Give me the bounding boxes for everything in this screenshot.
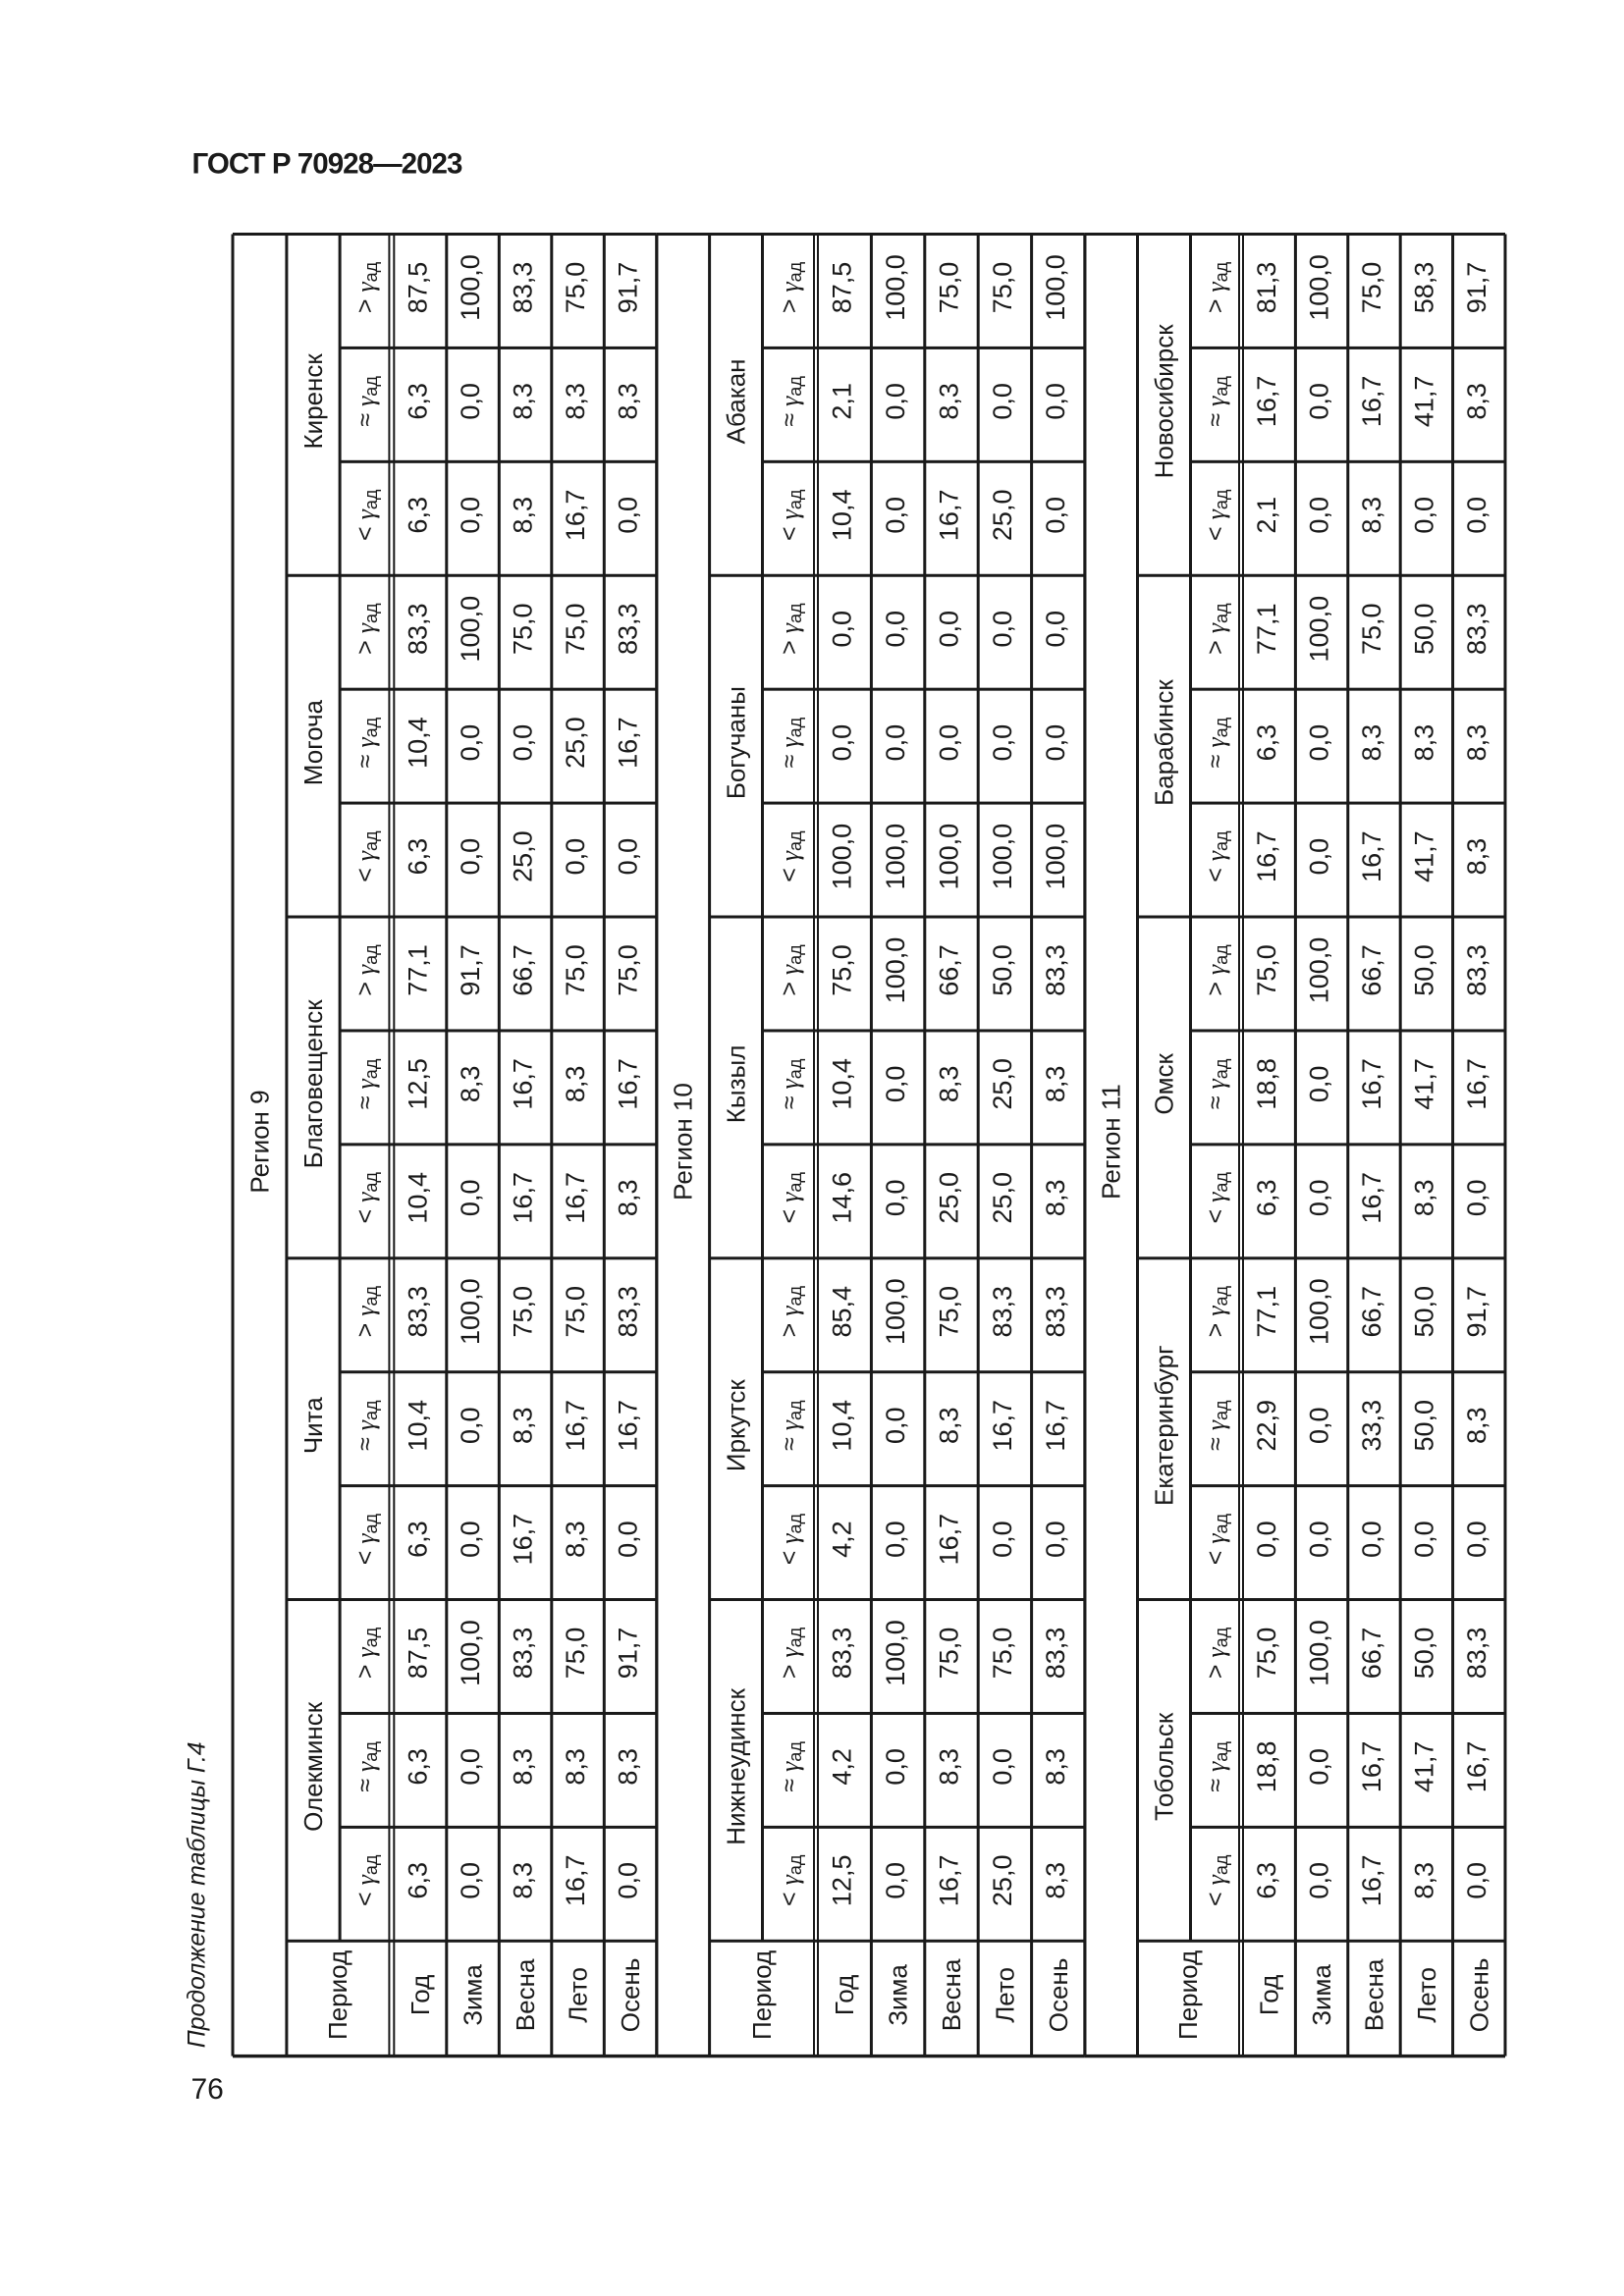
svg-text:75,0: 75,0 [988, 1628, 1017, 1680]
svg-text:12,5: 12,5 [828, 1855, 857, 1907]
svg-text:Весна: Весна [937, 1958, 966, 2031]
svg-text:75,0: 75,0 [561, 1628, 590, 1680]
svg-text:0,0: 0,0 [1305, 1748, 1334, 1786]
svg-text:75,0: 75,0 [828, 944, 857, 996]
svg-text:0,0: 0,0 [1462, 1521, 1491, 1558]
svg-text:100,0: 100,0 [456, 1278, 485, 1345]
svg-text:87,5: 87,5 [404, 262, 433, 314]
svg-text:Лето: Лето [990, 1967, 1019, 2023]
svg-text:0,0: 0,0 [456, 1862, 485, 1899]
svg-text:33,3: 33,3 [1357, 1400, 1386, 1452]
svg-text:41,7: 41,7 [1409, 1058, 1438, 1110]
svg-text:8,3: 8,3 [1409, 1862, 1438, 1899]
svg-text:12,5: 12,5 [404, 1058, 433, 1110]
svg-text:25,0: 25,0 [935, 1172, 964, 1224]
svg-text:100,0: 100,0 [881, 1620, 910, 1686]
svg-text:16,7: 16,7 [1357, 830, 1386, 882]
svg-text:8,3: 8,3 [561, 1748, 590, 1786]
svg-text:0,0: 0,0 [1041, 1521, 1070, 1558]
svg-text:25,0: 25,0 [988, 1058, 1017, 1110]
svg-text:75,0: 75,0 [1252, 1628, 1281, 1680]
svg-text:91,7: 91,7 [1462, 1286, 1491, 1338]
svg-text:8,3: 8,3 [1357, 724, 1386, 762]
svg-text:16,7: 16,7 [935, 1855, 964, 1907]
svg-text:Омск: Омск [1150, 1053, 1179, 1115]
svg-text:83,3: 83,3 [509, 1628, 538, 1680]
svg-text:0,0: 0,0 [828, 611, 857, 648]
svg-text:77,1: 77,1 [404, 944, 433, 996]
svg-text:10,4: 10,4 [828, 490, 857, 542]
svg-text:75,0: 75,0 [988, 262, 1017, 314]
svg-text:100,0: 100,0 [988, 824, 1017, 890]
svg-text:6,3: 6,3 [404, 497, 433, 534]
svg-text:0,0: 0,0 [456, 1180, 485, 1217]
svg-text:75,0: 75,0 [935, 262, 964, 314]
svg-text:8,3: 8,3 [1462, 724, 1491, 762]
svg-text:0,0: 0,0 [1409, 1521, 1438, 1558]
svg-text:16,7: 16,7 [614, 717, 643, 769]
svg-text:8,3: 8,3 [935, 1748, 964, 1786]
svg-text:10,4: 10,4 [404, 717, 433, 769]
svg-text:Регион 9: Регион 9 [244, 1090, 274, 1193]
svg-text:83,3: 83,3 [614, 1286, 643, 1338]
svg-text:66,7: 66,7 [935, 944, 964, 996]
svg-text:100,0: 100,0 [1305, 937, 1334, 1004]
svg-text:16,7: 16,7 [1462, 1741, 1491, 1793]
svg-text:16,7: 16,7 [561, 490, 590, 542]
svg-text:0,0: 0,0 [988, 611, 1017, 648]
svg-text:0,0: 0,0 [935, 724, 964, 762]
svg-text:8,3: 8,3 [1462, 838, 1491, 876]
svg-text:83,3: 83,3 [404, 603, 433, 655]
svg-text:75,0: 75,0 [1252, 944, 1281, 996]
svg-text:100,0: 100,0 [456, 1620, 485, 1686]
svg-text:8,3: 8,3 [614, 1180, 643, 1217]
svg-text:16,7: 16,7 [561, 1855, 590, 1907]
svg-text:0,0: 0,0 [1305, 1407, 1334, 1444]
svg-text:Иркутск: Иркутск [722, 1379, 751, 1471]
svg-text:16,7: 16,7 [614, 1400, 643, 1452]
svg-text:0,0: 0,0 [881, 497, 910, 534]
svg-text:0,0: 0,0 [456, 497, 485, 534]
svg-text:100,0: 100,0 [1305, 254, 1334, 321]
svg-text:0,0: 0,0 [881, 1521, 910, 1558]
svg-text:8,3: 8,3 [1409, 1180, 1438, 1217]
svg-text:8,3: 8,3 [561, 1066, 590, 1103]
svg-text:16,7: 16,7 [1252, 830, 1281, 882]
svg-text:6,3: 6,3 [404, 383, 433, 420]
svg-text:8,3: 8,3 [1041, 1748, 1070, 1786]
svg-text:25,0: 25,0 [509, 830, 538, 882]
svg-text:Абакан: Абакан [722, 358, 751, 444]
svg-text:0,0: 0,0 [881, 383, 910, 420]
svg-text:2,1: 2,1 [1252, 497, 1281, 534]
svg-text:16,7: 16,7 [935, 490, 964, 542]
svg-text:100,0: 100,0 [456, 254, 485, 321]
svg-text:87,5: 87,5 [828, 262, 857, 314]
svg-text:Лето: Лето [564, 1967, 593, 2023]
svg-text:8,3: 8,3 [509, 497, 538, 534]
svg-text:0,0: 0,0 [456, 1407, 485, 1444]
svg-text:16,7: 16,7 [561, 1400, 590, 1452]
svg-text:66,7: 66,7 [1357, 1286, 1386, 1338]
svg-text:100,0: 100,0 [881, 254, 910, 321]
svg-text:0,0: 0,0 [1305, 497, 1334, 534]
svg-text:8,3: 8,3 [509, 1748, 538, 1786]
svg-text:4,2: 4,2 [828, 1521, 857, 1558]
svg-text:81,3: 81,3 [1252, 262, 1281, 314]
svg-text:16,7: 16,7 [1252, 376, 1281, 428]
svg-text:8,3: 8,3 [1357, 497, 1386, 534]
svg-text:0,0: 0,0 [1305, 1862, 1334, 1899]
svg-text:75,0: 75,0 [561, 944, 590, 996]
svg-text:10,4: 10,4 [828, 1400, 857, 1452]
svg-text:0,0: 0,0 [614, 838, 643, 876]
svg-text:100,0: 100,0 [881, 937, 910, 1004]
svg-text:8,3: 8,3 [1462, 1407, 1491, 1444]
svg-text:Благовещенск: Благовещенск [298, 999, 328, 1169]
svg-text:83,3: 83,3 [1041, 1628, 1070, 1680]
svg-text:16,7: 16,7 [614, 1058, 643, 1110]
svg-text:6,3: 6,3 [404, 1862, 433, 1899]
svg-text:Киренск: Киренск [298, 353, 328, 450]
svg-text:100,0: 100,0 [1041, 254, 1070, 321]
svg-text:0,0: 0,0 [614, 1862, 643, 1899]
svg-text:Весна: Весна [1360, 1958, 1389, 2031]
svg-text:Барабинск: Барабинск [1150, 679, 1179, 806]
svg-text:0,0: 0,0 [456, 383, 485, 420]
svg-text:0,0: 0,0 [1305, 1066, 1334, 1103]
svg-text:Екатеринбург: Екатеринбург [1150, 1345, 1179, 1506]
svg-text:16,7: 16,7 [935, 1514, 964, 1566]
svg-text:100,0: 100,0 [456, 596, 485, 663]
svg-text:87,5: 87,5 [404, 1628, 433, 1680]
svg-text:0,0: 0,0 [1305, 1180, 1334, 1217]
svg-text:0,0: 0,0 [1305, 383, 1334, 420]
svg-text:Зима: Зима [884, 1964, 913, 2026]
svg-text:100,0: 100,0 [1305, 596, 1334, 663]
svg-text:0,0: 0,0 [881, 1066, 910, 1103]
svg-text:2,1: 2,1 [828, 383, 857, 420]
svg-text:6,3: 6,3 [404, 838, 433, 876]
svg-text:14,6: 14,6 [828, 1172, 857, 1224]
svg-text:Богучаны: Богучаны [722, 686, 751, 799]
svg-text:0,0: 0,0 [509, 724, 538, 762]
svg-text:Год: Год [406, 1975, 435, 2015]
svg-text:41,7: 41,7 [1409, 830, 1438, 882]
svg-text:Период: Период [323, 1950, 352, 2040]
svg-text:0,0: 0,0 [881, 611, 910, 648]
svg-text:0,0: 0,0 [881, 1407, 910, 1444]
svg-text:83,3: 83,3 [1041, 944, 1070, 996]
svg-text:83,3: 83,3 [614, 603, 643, 655]
svg-text:16,7: 16,7 [561, 1172, 590, 1224]
svg-text:75,0: 75,0 [935, 1628, 964, 1680]
svg-text:66,7: 66,7 [509, 944, 538, 996]
svg-text:100,0: 100,0 [881, 824, 910, 890]
svg-text:Осень: Осень [616, 1958, 645, 2033]
svg-text:58,3: 58,3 [1409, 262, 1438, 314]
svg-text:0,0: 0,0 [935, 611, 964, 648]
svg-text:91,7: 91,7 [614, 1628, 643, 1680]
svg-text:0,0: 0,0 [1041, 724, 1070, 762]
svg-text:75,0: 75,0 [614, 944, 643, 996]
svg-text:0,0: 0,0 [988, 1521, 1017, 1558]
svg-text:Могоча: Могоча [298, 699, 328, 785]
svg-text:8,3: 8,3 [561, 383, 590, 420]
svg-text:16,7: 16,7 [1357, 1855, 1386, 1907]
svg-text:0,0: 0,0 [1305, 1521, 1334, 1558]
svg-text:Регион 10: Регион 10 [669, 1083, 698, 1201]
svg-text:10,4: 10,4 [404, 1172, 433, 1224]
svg-text:8,3: 8,3 [1041, 1862, 1070, 1899]
svg-text:Период: Период [747, 1950, 777, 2040]
svg-text:Лето: Лето [1412, 1967, 1441, 2023]
svg-text:83,3: 83,3 [404, 1286, 433, 1338]
svg-text:25,0: 25,0 [988, 490, 1017, 542]
svg-text:50,0: 50,0 [1409, 603, 1438, 655]
svg-text:85,4: 85,4 [828, 1286, 857, 1338]
svg-text:16,7: 16,7 [509, 1172, 538, 1224]
svg-text:100,0: 100,0 [881, 1278, 910, 1345]
svg-text:75,0: 75,0 [509, 1286, 538, 1338]
svg-text:0,0: 0,0 [561, 838, 590, 876]
svg-text:0,0: 0,0 [456, 724, 485, 762]
svg-text:0,0: 0,0 [881, 1748, 910, 1786]
svg-text:41,7: 41,7 [1409, 1741, 1438, 1793]
svg-text:16,7: 16,7 [1041, 1400, 1070, 1452]
svg-text:0,0: 0,0 [988, 1748, 1017, 1786]
svg-text:75,0: 75,0 [561, 1286, 590, 1338]
svg-text:10,4: 10,4 [404, 1400, 433, 1452]
svg-text:100,0: 100,0 [935, 824, 964, 890]
svg-text:83,3: 83,3 [1462, 944, 1491, 996]
svg-text:8,3: 8,3 [1462, 383, 1491, 420]
svg-text:Год: Год [830, 1975, 859, 2015]
svg-text:50,0: 50,0 [1409, 1286, 1438, 1338]
svg-text:0,0: 0,0 [1041, 611, 1070, 648]
svg-text:0,0: 0,0 [456, 838, 485, 876]
svg-text:16,7: 16,7 [988, 1400, 1017, 1452]
svg-text:18,8: 18,8 [1252, 1741, 1281, 1793]
svg-text:Зима: Зима [1307, 1964, 1336, 2026]
svg-text:Тобольск: Тобольск [1150, 1712, 1179, 1821]
svg-text:91,7: 91,7 [614, 262, 643, 314]
svg-text:8,3: 8,3 [614, 1748, 643, 1786]
svg-text:0,0: 0,0 [1462, 1180, 1491, 1217]
svg-text:8,3: 8,3 [509, 383, 538, 420]
svg-text:0,0: 0,0 [1041, 383, 1070, 420]
svg-text:16,7: 16,7 [509, 1514, 538, 1566]
svg-text:83,3: 83,3 [509, 262, 538, 314]
svg-text:100,0: 100,0 [828, 824, 857, 890]
svg-text:50,0: 50,0 [1409, 1628, 1438, 1680]
svg-text:75,0: 75,0 [561, 603, 590, 655]
svg-text:76: 76 [191, 2073, 224, 2106]
svg-text:8,3: 8,3 [614, 383, 643, 420]
svg-text:83,3: 83,3 [988, 1286, 1017, 1338]
svg-text:77,1: 77,1 [1252, 603, 1281, 655]
svg-text:50,0: 50,0 [988, 944, 1017, 996]
svg-text:25,0: 25,0 [988, 1172, 1017, 1224]
svg-text:18,8: 18,8 [1252, 1058, 1281, 1110]
svg-text:Нижнеудинск: Нижнеудинск [722, 1687, 751, 1844]
svg-text:22,9: 22,9 [1252, 1400, 1281, 1452]
svg-text:0,0: 0,0 [1462, 497, 1491, 534]
svg-text:50,0: 50,0 [1409, 1400, 1438, 1452]
svg-text:6,3: 6,3 [1252, 1862, 1281, 1899]
svg-text:Новосибирск: Новосибирск [1150, 324, 1179, 479]
svg-text:Регион 11: Регион 11 [1097, 1084, 1126, 1200]
svg-text:8,3: 8,3 [935, 1066, 964, 1103]
svg-text:0,0: 0,0 [881, 1862, 910, 1899]
svg-text:75,0: 75,0 [509, 603, 538, 655]
svg-text:8,3: 8,3 [935, 1407, 964, 1444]
svg-text:0,0: 0,0 [988, 383, 1017, 420]
svg-text:66,7: 66,7 [1357, 1628, 1386, 1680]
svg-text:16,7: 16,7 [1462, 1058, 1491, 1110]
svg-text:Чита: Чита [298, 1397, 328, 1454]
svg-text:41,7: 41,7 [1409, 376, 1438, 428]
svg-text:0,0: 0,0 [1041, 497, 1070, 534]
svg-text:Олекминск: Олекминск [298, 1701, 328, 1832]
svg-text:8,3: 8,3 [1041, 1180, 1070, 1217]
svg-text:ГОСТ Р 70928—2023: ГОСТ Р 70928—2023 [192, 148, 462, 181]
svg-text:0,0: 0,0 [828, 724, 857, 762]
svg-text:66,7: 66,7 [1357, 944, 1386, 996]
svg-text:8,3: 8,3 [1041, 1066, 1070, 1103]
svg-text:0,0: 0,0 [456, 1748, 485, 1786]
svg-text:75,0: 75,0 [561, 262, 590, 314]
svg-text:83,3: 83,3 [1462, 1628, 1491, 1680]
svg-text:100,0: 100,0 [1305, 1620, 1334, 1686]
svg-text:8,3: 8,3 [509, 1407, 538, 1444]
svg-text:8,3: 8,3 [561, 1521, 590, 1558]
svg-text:Продолжение таблицы Г.4: Продолжение таблицы Г.4 [185, 1741, 211, 2048]
svg-text:16,7: 16,7 [1357, 1058, 1386, 1110]
svg-text:50,0: 50,0 [1409, 944, 1438, 996]
svg-text:0,0: 0,0 [1409, 497, 1438, 534]
svg-text:Зима: Зима [459, 1964, 488, 2026]
svg-text:25,0: 25,0 [988, 1855, 1017, 1907]
svg-text:0,0: 0,0 [614, 1521, 643, 1558]
svg-text:75,0: 75,0 [1357, 262, 1386, 314]
svg-text:83,3: 83,3 [1041, 1286, 1070, 1338]
svg-text:0,0: 0,0 [881, 724, 910, 762]
svg-text:100,0: 100,0 [1305, 1278, 1334, 1345]
svg-text:0,0: 0,0 [456, 1521, 485, 1558]
svg-text:6,3: 6,3 [1252, 724, 1281, 762]
svg-text:0,0: 0,0 [1305, 724, 1334, 762]
svg-text:8,3: 8,3 [456, 1066, 485, 1103]
svg-text:8,3: 8,3 [1409, 724, 1438, 762]
svg-text:6,3: 6,3 [404, 1748, 433, 1786]
svg-text:Кызыл: Кызыл [722, 1045, 751, 1124]
svg-text:75,0: 75,0 [935, 1286, 964, 1338]
svg-text:6,3: 6,3 [1252, 1180, 1281, 1217]
svg-text:0,0: 0,0 [1462, 1862, 1491, 1899]
svg-text:16,7: 16,7 [509, 1058, 538, 1110]
svg-text:100,0: 100,0 [1041, 824, 1070, 890]
svg-text:77,1: 77,1 [1252, 1286, 1281, 1338]
svg-text:Осень: Осень [1464, 1958, 1493, 2033]
svg-text:75,0: 75,0 [1357, 603, 1386, 655]
svg-text:0,0: 0,0 [1305, 838, 1334, 876]
svg-text:0,0: 0,0 [1252, 1521, 1281, 1558]
svg-text:Период: Период [1173, 1950, 1203, 2040]
svg-text:0,0: 0,0 [881, 1180, 910, 1217]
svg-text:8,3: 8,3 [509, 1862, 538, 1899]
svg-text:0,0: 0,0 [1357, 1521, 1386, 1558]
svg-text:6,3: 6,3 [404, 1521, 433, 1558]
svg-text:83,3: 83,3 [1462, 603, 1491, 655]
svg-text:Весна: Весна [511, 1958, 540, 2031]
svg-text:10,4: 10,4 [828, 1058, 857, 1110]
svg-text:8,3: 8,3 [935, 383, 964, 420]
svg-text:Год: Год [1255, 1975, 1284, 2015]
svg-text:25,0: 25,0 [561, 717, 590, 769]
svg-text:0,0: 0,0 [988, 724, 1017, 762]
svg-text:16,7: 16,7 [1357, 376, 1386, 428]
svg-text:4,2: 4,2 [828, 1748, 857, 1786]
svg-text:16,7: 16,7 [1357, 1741, 1386, 1793]
svg-text:16,7: 16,7 [1357, 1172, 1386, 1224]
svg-text:91,7: 91,7 [456, 944, 485, 996]
svg-text:83,3: 83,3 [828, 1628, 857, 1680]
svg-text:Осень: Осень [1044, 1958, 1073, 2033]
svg-text:0,0: 0,0 [614, 497, 643, 534]
svg-text:91,7: 91,7 [1462, 262, 1491, 314]
